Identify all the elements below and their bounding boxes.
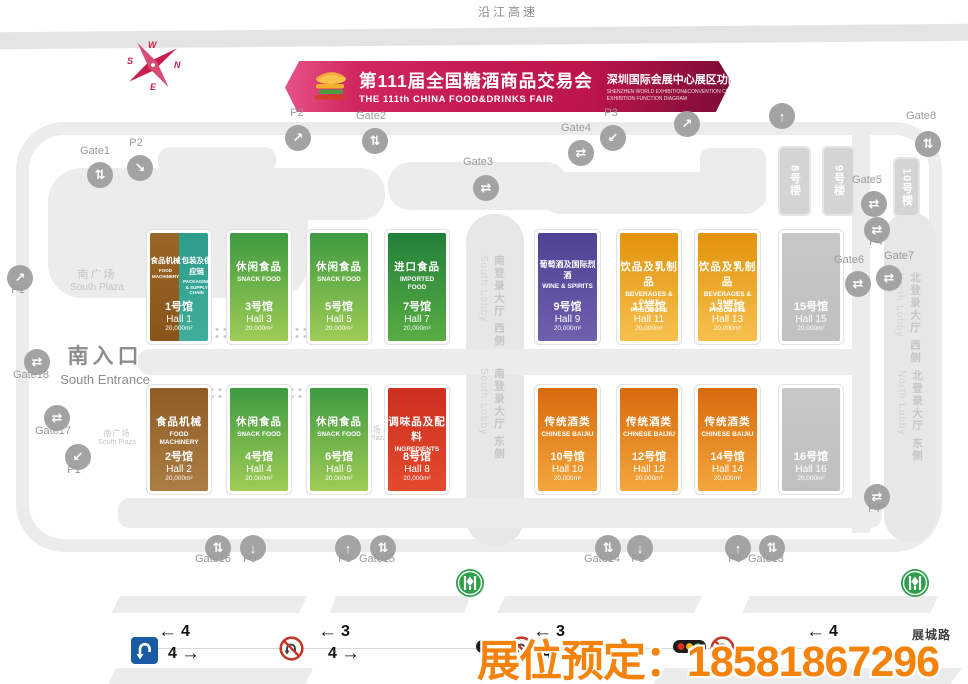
hall-area: 20,000m² — [150, 325, 208, 332]
hall-area: 20,000m² — [388, 325, 446, 332]
hall-category-cn: 食品机械 — [150, 255, 181, 266]
hall-number-en: Hall 11 — [620, 314, 678, 325]
hall-area: 20,000m² — [698, 325, 757, 332]
venue-subtitle-en2: EXHIBITION FUNCTION DIAGRAM — [607, 96, 750, 103]
hall-categories — [782, 388, 840, 414]
hall-category-en: WINE & SPIRITS — [538, 283, 597, 291]
marker-label-p7: P7 — [841, 503, 909, 515]
hall-category-cn: 进口食品 — [388, 259, 446, 274]
hall-categories: 进口食品IMPORTED FOOD — [388, 233, 446, 292]
hall-number-en: Hall 16 — [782, 464, 840, 475]
marker-label-gate18: Gate18 — [0, 369, 65, 381]
hall-category-cn: 传统酒类 — [620, 414, 678, 429]
hall-category-en: CHINESE BAIJIU — [538, 431, 597, 439]
hall-number-block: 1号馆Hall 120,000m² — [150, 298, 208, 332]
hall-category-en: IMPORTED FOOD — [388, 276, 446, 292]
lobby-label-cn: 南登录大厅 东侧 — [492, 368, 507, 460]
svg-text:E: E — [150, 82, 157, 92]
booth-booking-hotline: 展位预定：18581867296 — [477, 627, 939, 684]
marker-label-p1: P1 — [0, 284, 52, 296]
banner-subtitle-block: 深圳国际会展中心展区功能图 SHENZHEN WORLD EXHIBITION&… — [607, 71, 750, 102]
hall-category: 进口食品IMPORTED FOOD — [388, 233, 446, 292]
south-plaza-label: 南广场 South Plaza — [57, 266, 137, 293]
marker-label-gate4: Gate4 — [542, 122, 610, 134]
hall-category-en: SNACK FOOD — [230, 431, 288, 439]
hall-category-cn: 食品机械 — [150, 414, 208, 429]
lane-count: 4 — [181, 623, 190, 641]
hall-number-cn: 6号馆 — [310, 448, 368, 464]
hall-number-en: Hall 10 — [538, 464, 597, 475]
hall-category-en: SNACK FOOD — [310, 431, 368, 439]
marker-label-gate3: Gate3 — [444, 156, 512, 168]
hall-number-en: Hall 8 — [388, 464, 446, 475]
lobby-label: South Lobby南登录大厅 西侧 — [478, 255, 507, 347]
marker-p2-icon: ↗ — [285, 125, 311, 151]
marker-label-gate5: Gate5 — [833, 174, 901, 186]
lobby-label-en: South Lobby — [478, 368, 489, 460]
road-shape — [112, 596, 307, 613]
hall-category-en: SNACK FOOD — [310, 276, 368, 284]
hall-number-en: Hall 3 — [230, 314, 288, 325]
lobby-label-cn: 北登录大厅 西侧 — [908, 272, 923, 364]
hall-categories: 传统酒类CHINESE BAIJIU — [620, 388, 678, 439]
hall-number-cn: 7号馆 — [388, 298, 446, 314]
marker-label-gate13: Gate13 — [732, 553, 800, 565]
hall-hall-4: 休闲食品SNACK FOOD4号馆Hall 420,000m² — [230, 388, 288, 491]
hall-number-cn: 8号馆 — [388, 448, 446, 464]
hall-number-block: 11号馆Hall 1120,000m² — [620, 298, 678, 332]
marker-label-p3: P3 — [577, 107, 645, 119]
hall-number-en: Hall 12 — [620, 464, 678, 475]
hall-hall-9: 葡萄酒及国际烈酒WINE & SPIRITS9号馆Hall 920,000m² — [538, 233, 597, 341]
hall-number-block: 8号馆Hall 820,000m² — [388, 448, 446, 482]
marker-gate5-icon: ⇄ — [861, 191, 887, 217]
hall-number-block: 15号馆Hall 1520,000m² — [782, 298, 840, 332]
marker-label-gate15: Gate15 — [343, 553, 411, 565]
metro-logo-icon — [900, 568, 930, 598]
hall-number-cn: 5号馆 — [310, 298, 368, 314]
south-plaza-cn: 南广场 — [82, 428, 152, 439]
lane-count: 4 — [168, 645, 177, 663]
hall-category: 包装及供应链PACKAGING & SUPPLY CHAIN — [181, 233, 212, 296]
hall-number-cn: 2号馆 — [150, 448, 208, 464]
hall-hall-6: 休闲食品SNACK FOOD6号馆Hall 620,000m² — [310, 388, 368, 491]
hall-category-cn: 饮品及乳制品 — [620, 259, 678, 289]
hall-category: 传统酒类CHINESE BAIJIU — [698, 388, 757, 439]
hall-hall-7: 进口食品IMPORTED FOOD7号馆Hall 720,000m² — [388, 233, 446, 341]
marker-gate6-icon: ⇄ — [845, 271, 871, 297]
marker-label-gate7: Gate7 — [865, 250, 933, 262]
hall-categories: 休闲食品SNACK FOOD — [310, 388, 368, 439]
hall-number-block: 16号馆Hall 1620,000m² — [782, 448, 840, 482]
lobby-label: South Lobby南登录大厅 东侧 — [478, 368, 507, 460]
marker-arrow-icon: ↑ — [769, 103, 795, 129]
hall-number-cn: 11号馆 — [620, 298, 678, 314]
hall-category: 葡萄酒及国际烈酒WINE & SPIRITS — [538, 233, 597, 291]
south-plaza-en: South Plaza — [82, 439, 152, 446]
hall-hall-15: 15号馆Hall 1520,000m² — [782, 233, 840, 341]
hall-number-en: Hall 7 — [388, 314, 446, 325]
hall-category — [782, 388, 840, 414]
hall-number-cn: 10号馆 — [538, 448, 597, 464]
hall-area: 20,000m² — [538, 475, 597, 482]
uturn-sign-icon — [131, 637, 158, 664]
hall-category: 传统酒类CHINESE BAIJIU — [620, 388, 678, 439]
hall-hall-12: 传统酒类CHINESE BAIJIU12号馆Hall 1220,000m² — [620, 388, 678, 491]
road-shape — [700, 148, 766, 208]
hall-number-en: Hall 1 — [150, 314, 208, 325]
metro-logo-icon — [455, 568, 485, 598]
svg-text:W: W — [148, 40, 158, 50]
hall-number-block: 4号馆Hall 420,000m² — [230, 448, 288, 482]
hall-category-cn: 包装及供应链 — [181, 255, 212, 277]
right-arrow-icon: → — [341, 643, 360, 665]
lane-left: ←4 — [158, 621, 200, 643]
south-plaza-label-small: 南广场 South Plaza — [82, 428, 152, 446]
banner-title-block: 第111届全国糖酒商品交易会 THE 111th CHINA FOOD&DRIN… — [359, 68, 593, 105]
south-service-road — [118, 498, 882, 528]
left-arrow-icon: ← — [158, 621, 177, 643]
hall-categories: 休闲食品SNACK FOOD — [230, 388, 288, 439]
hall-number-en: Hall 2 — [150, 464, 208, 475]
hall-hall-8: 调味品及配料INGREDIENTS8号馆Hall 820,000m² — [388, 388, 446, 491]
hall-category: 传统酒类CHINESE BAIJIU — [538, 388, 597, 439]
hall-number-cn: 9号馆 — [538, 298, 597, 314]
hall-number-cn: 1号馆 — [150, 298, 208, 314]
hall-number-block: 7号馆Hall 720,000m² — [388, 298, 446, 332]
fair-logo-icon — [307, 70, 351, 104]
building-8号楼: 8号楼 — [778, 146, 811, 216]
hall-categories: 传统酒类CHINESE BAIJIU — [698, 388, 757, 439]
hall-number-block: 13号馆Hall 1320,000m² — [698, 298, 757, 332]
hall-categories: 食品机械FOOD MACHINERY包装及供应链PACKAGING & SUPP… — [150, 233, 208, 296]
hall-hall-13: 饮品及乳制品BEVERAGES & DAIRT PRODUCTS13号馆Hall… — [698, 233, 757, 341]
venue-subtitle-cn: 深圳国际会展中心展区功能图 — [607, 71, 750, 87]
fair-title-en: THE 111th CHINA FOOD&DRINKS FAIR — [359, 94, 593, 105]
hall-area: 20,000m² — [230, 475, 288, 482]
hall-category-cn: 传统酒类 — [538, 414, 597, 429]
exhibition-map: 沿江高速 W N S E — [0, 0, 968, 684]
hall-area: 20,000m² — [310, 475, 368, 482]
hall-category-cn: 葡萄酒及国际烈酒 — [538, 259, 597, 281]
hall-number-cn: 3号馆 — [230, 298, 288, 314]
no-uturn-sign-icon — [279, 636, 304, 661]
road-shape — [108, 668, 313, 684]
hall-number-block: 2号馆Hall 220,000m² — [150, 448, 208, 482]
hall-category-en: SNACK FOOD — [230, 276, 288, 284]
hall-category-cn: 调味品及配料 — [388, 414, 446, 444]
hall-number-en: Hall 14 — [698, 464, 757, 475]
hall-categories: 调味品及配料INGREDIENTS — [388, 388, 446, 454]
hall-hall-10: 传统酒类CHINESE BAIJIU10号馆Hall 1020,000m² — [538, 388, 597, 491]
hall-categories: 食品机械FOOD MACHINERY — [150, 388, 208, 447]
hall-category: 休闲食品SNACK FOOD — [310, 388, 368, 439]
hall-area: 20,000m² — [388, 475, 446, 482]
marker-label-gate17: Gate17 — [19, 425, 87, 437]
lane-count-arrows: ←44→ — [158, 621, 200, 665]
marker-label-p9: P9 — [216, 553, 284, 565]
hall-number-cn: 13号馆 — [698, 298, 757, 314]
fair-title-cn: 第111届全国糖酒商品交易会 — [359, 68, 593, 93]
hall-number-block: 9号馆Hall 920,000m² — [538, 298, 597, 332]
hall-hall-16: 16号馆Hall 1620,000m² — [782, 388, 840, 491]
hall-category: 食品机械FOOD MACHINERY — [150, 388, 208, 447]
marker-label-gate8: Gate8 — [887, 110, 955, 122]
lane-count: 4 — [328, 645, 337, 663]
hall-categories: 休闲食品SNACK FOOD — [230, 233, 288, 284]
hall-number-block: 3号馆Hall 320,000m² — [230, 298, 288, 332]
south-entrance-cn: 南入口 — [40, 340, 170, 370]
hall-categories: 传统酒类CHINESE BAIJIU — [538, 388, 597, 439]
hall-category-en: FOOD MACHINERY — [150, 268, 181, 279]
hall-number-cn: 16号馆 — [782, 448, 840, 464]
hall-area: 20,000m² — [310, 325, 368, 332]
hall-category-cn: 休闲食品 — [230, 259, 288, 274]
hall-category-en: FOOD MACHINERY — [150, 431, 208, 447]
hall-number-cn: 14号馆 — [698, 448, 757, 464]
hall-categories: 葡萄酒及国际烈酒WINE & SPIRITS — [538, 233, 597, 291]
hall-hall-2: 食品机械FOOD MACHINERY2号馆Hall 220,000m² — [150, 388, 208, 491]
hall-category: 休闲食品SNACK FOOD — [230, 388, 288, 439]
lobby-label-cn: 南登录大厅 西侧 — [492, 255, 507, 347]
hall-number-block: 6号馆Hall 620,000m² — [310, 448, 368, 482]
hall-category: 休闲食品SNACK FOOD — [230, 233, 288, 284]
lane-right: 4→ — [328, 643, 360, 665]
lane-left: ←3 — [318, 621, 360, 643]
fair-title-banner: 第111届全国糖酒商品交易会 THE 111th CHINA FOOD&DRIN… — [285, 61, 731, 112]
hall-number-cn: 12号馆 — [620, 448, 678, 464]
hall-area: 20,000m² — [620, 325, 678, 332]
marker-label-p4: P4 — [842, 236, 910, 248]
hall-category-en: PACKAGING & SUPPLY CHAIN — [181, 279, 212, 296]
hall-area: 20,000m² — [782, 325, 840, 332]
hall-number-block: 5号馆Hall 520,000m² — [310, 298, 368, 332]
hall-number-cn: 4号馆 — [230, 448, 288, 464]
compass-icon: W N S E — [122, 36, 186, 94]
hall-number-en: Hall 15 — [782, 314, 840, 325]
hall-hall-14: 传统酒类CHINESE BAIJIU14号馆Hall 1420,000m² — [698, 388, 757, 491]
hall-hall-5: 休闲食品SNACK FOOD5号馆Hall 520,000m² — [310, 233, 368, 341]
marker-gate7-icon: ⇄ — [876, 265, 902, 291]
building-10号楼: 10号楼 — [893, 157, 920, 217]
hall-category-en: CHINESE BAIJIU — [620, 431, 678, 439]
building-label: 8号楼 — [787, 165, 803, 196]
lane-count-arrows: ←34→ — [318, 621, 360, 665]
hall-number-en: Hall 9 — [538, 314, 597, 325]
hall-category-cn: 休闲食品 — [310, 414, 368, 429]
hall-area: 20,000m² — [620, 475, 678, 482]
hall-hall-11: 饮品及乳制品BEVERAGES & DAIRT PRODUCTS11号馆Hall… — [620, 233, 678, 341]
marker-gate4-icon: ⇄ — [568, 140, 594, 166]
road-shape — [742, 596, 938, 613]
hall-number-cn: 15号馆 — [782, 298, 840, 314]
hall-number-en: Hall 13 — [698, 314, 757, 325]
hall-category: 食品机械FOOD MACHINERY — [150, 233, 181, 296]
hall-number-en: Hall 6 — [310, 464, 368, 475]
lane-right: 4→ — [168, 643, 200, 665]
hall-area: 20,000m² — [150, 475, 208, 482]
lobby-label: North Lobby北登录大厅 东侧 — [896, 370, 925, 462]
lobby-label-cn: 北登录大厅 东侧 — [910, 370, 925, 462]
hall-area: 20,000m² — [698, 475, 757, 482]
marker-label-p2: P2 — [102, 137, 170, 149]
marker-gate8-icon: ⇅ — [915, 131, 941, 157]
south-plaza-cn: 南广场 — [57, 266, 137, 282]
svg-text:S: S — [127, 56, 133, 66]
highway-label: 沿江高速 — [448, 3, 568, 20]
marker-gate2-icon: ⇅ — [362, 128, 388, 154]
hall-category: 休闲食品SNACK FOOD — [310, 233, 368, 284]
hall-category-cn: 饮品及乳制品 — [698, 259, 757, 289]
hall-number-en: Hall 4 — [230, 464, 288, 475]
marker-gate1-icon: ⇅ — [87, 162, 113, 188]
lane-count: 3 — [341, 623, 350, 641]
right-arrow-icon: → — [181, 643, 200, 665]
hall-category-cn: 传统酒类 — [698, 414, 757, 429]
hall-number-block: 14号馆Hall 1420,000m² — [698, 448, 757, 482]
lobby-label-en: North Lobby — [896, 370, 907, 462]
south-plaza-en: South Plaza — [57, 282, 137, 293]
road-shape — [330, 596, 470, 613]
road-shape — [497, 596, 702, 613]
hall-category-cn: 休闲食品 — [310, 259, 368, 274]
marker-label-p8: P8 — [604, 553, 672, 565]
venue-subtitle-en1: SHENZHEN WORLD EXHIBITION&CONVENTION CEN… — [607, 89, 750, 96]
hall-category: 调味品及配料INGREDIENTS — [388, 388, 446, 454]
hall-number-en: Hall 5 — [310, 314, 368, 325]
hall-category-cn: 休闲食品 — [230, 414, 288, 429]
hall-number-block: 10号馆Hall 1020,000m² — [538, 448, 597, 482]
left-arrow-icon: ← — [318, 621, 337, 643]
marker-p3-icon: ↙ — [600, 125, 626, 151]
hall-hall-3: 休闲食品SNACK FOOD3号馆Hall 320,000m² — [230, 233, 288, 341]
hall-categories: 休闲食品SNACK FOOD — [310, 233, 368, 284]
hall-area: 20,000m² — [782, 475, 840, 482]
marker-label-p2: P2 — [263, 107, 331, 119]
marker-p2-icon: ↘ — [127, 155, 153, 181]
marker-label-p1: P1 — [40, 464, 108, 476]
svg-text:N: N — [174, 60, 181, 70]
hall-category-en: CHINESE BAIJIU — [698, 431, 757, 439]
hall-area: 20,000m² — [230, 325, 288, 332]
road-shape — [225, 168, 385, 220]
hall-number-block: 12号馆Hall 1220,000m² — [620, 448, 678, 482]
hall-hall-1: 食品机械FOOD MACHINERY包装及供应链PACKAGING & SUPP… — [150, 233, 208, 341]
lobby-label-en: South Lobby — [478, 255, 489, 347]
marker-arrow-icon: ↗ — [674, 111, 700, 137]
marker-label-gate2: Gate2 — [337, 110, 405, 122]
hall-area: 20,000m² — [538, 325, 597, 332]
marker-gate3-icon: ⇄ — [473, 175, 499, 201]
